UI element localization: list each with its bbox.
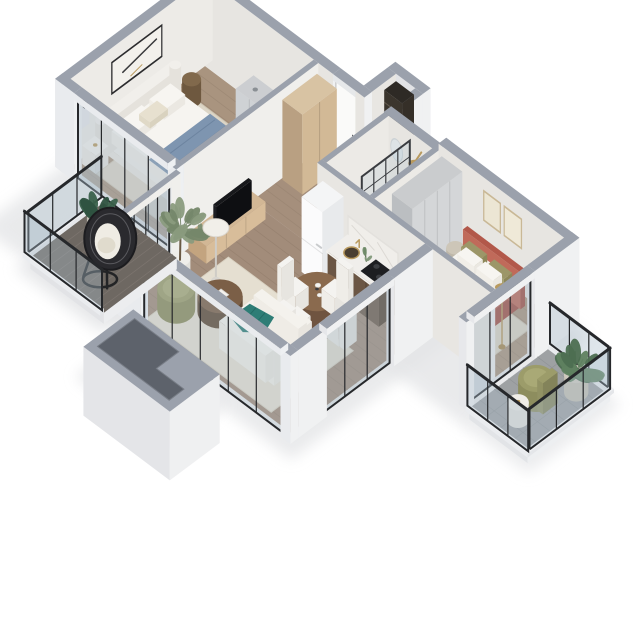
floorplan-svg [0, 0, 640, 629]
dining-cup [315, 283, 320, 287]
dining-chair-back [336, 257, 353, 306]
dining-cup [317, 293, 322, 296]
kitchen-sink [344, 247, 359, 259]
burner [373, 264, 379, 269]
floorplan-figure [0, 0, 640, 629]
wall-south-living [281, 343, 299, 444]
dining-bottle [315, 288, 319, 291]
floor-lamp-dome-shade [203, 219, 229, 237]
dining-chair-back [277, 256, 294, 305]
egg-chair-pillow [97, 237, 115, 253]
sideboard-decor [253, 87, 258, 91]
